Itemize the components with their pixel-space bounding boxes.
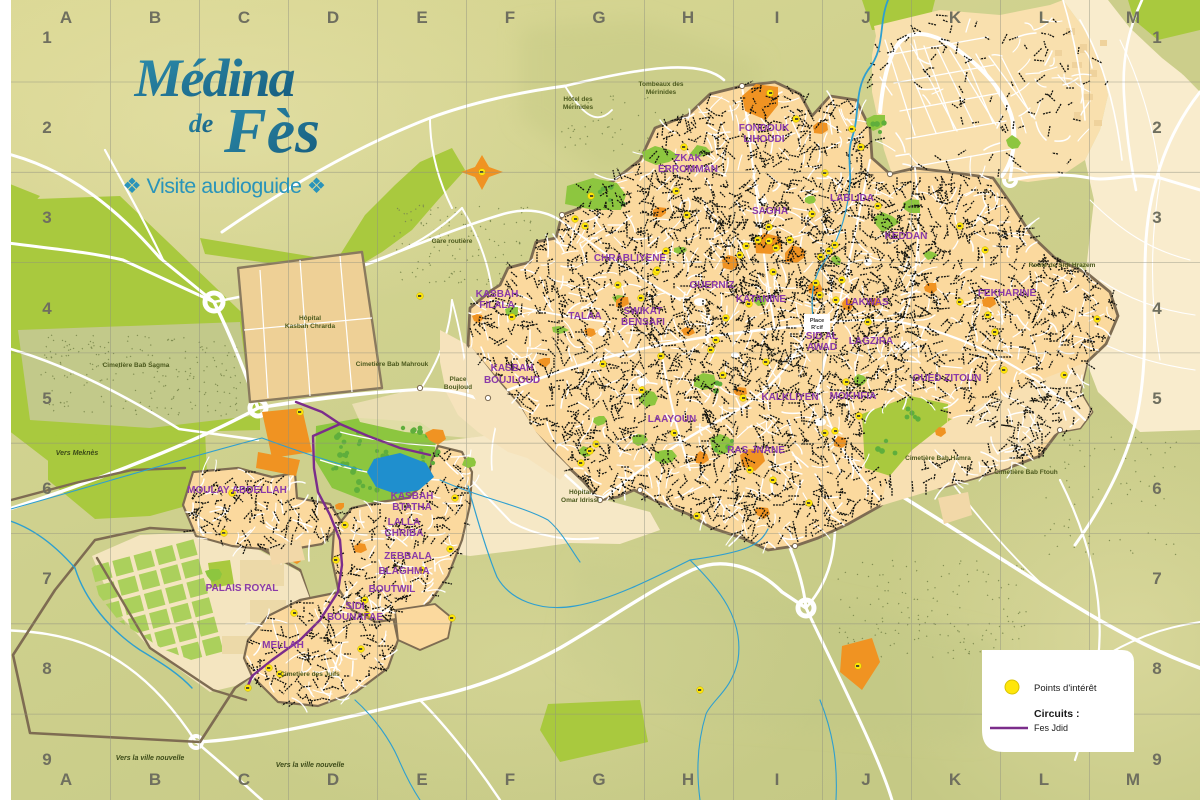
svg-text:Hôpital: Hôpital bbox=[569, 489, 591, 496]
svg-text:D: D bbox=[327, 8, 339, 27]
svg-text:BLAGHMA: BLAGHMA bbox=[378, 566, 429, 577]
svg-text:A: A bbox=[60, 770, 72, 789]
svg-text:MOKHFIA: MOKHFIA bbox=[830, 391, 877, 402]
svg-text:Vers la ville nouvelle: Vers la ville nouvelle bbox=[116, 755, 185, 762]
svg-text:BTATHA: BTATHA bbox=[392, 502, 432, 513]
svg-text:Circuits :: Circuits : bbox=[1034, 708, 1080, 720]
svg-text:KASBAH: KASBAH bbox=[391, 491, 434, 502]
svg-text:Cimetière des Juifs: Cimetière des Juifs bbox=[280, 671, 340, 678]
svg-text:LALLA: LALLA bbox=[388, 517, 421, 528]
svg-text:Cimetière Bab Mahrouk: Cimetière Bab Mahrouk bbox=[356, 361, 429, 368]
svg-text:C: C bbox=[238, 770, 250, 789]
svg-text:ERROMMAN: ERROMMAN bbox=[658, 164, 718, 175]
svg-text:9: 9 bbox=[1152, 750, 1161, 769]
svg-text:8: 8 bbox=[42, 659, 51, 678]
svg-text:I: I bbox=[775, 8, 780, 27]
svg-text:3: 3 bbox=[1152, 208, 1161, 227]
svg-text:4: 4 bbox=[42, 299, 52, 318]
svg-text:9: 9 bbox=[42, 750, 51, 769]
svg-text:Tombeaux des: Tombeaux des bbox=[638, 81, 683, 88]
svg-text:Route de Sidi Hrazem: Route de Sidi Hrazem bbox=[1029, 262, 1096, 269]
svg-text:J: J bbox=[861, 8, 870, 27]
svg-text:3: 3 bbox=[42, 208, 51, 227]
svg-text:FILALA: FILALA bbox=[479, 300, 515, 311]
svg-text:BOUJLOUD: BOUJLOUD bbox=[484, 375, 540, 386]
svg-text:Points d'intérêt: Points d'intérêt bbox=[1034, 683, 1097, 694]
svg-text:Fès: Fès bbox=[223, 95, 320, 166]
svg-text:Fes Jdid: Fes Jdid bbox=[1034, 723, 1068, 733]
svg-text:H: H bbox=[682, 8, 694, 27]
svg-text:1: 1 bbox=[42, 28, 51, 47]
svg-text:Cimetière Bab Ftouh: Cimetière Bab Ftouh bbox=[994, 469, 1058, 476]
svg-text:K: K bbox=[949, 8, 962, 27]
svg-text:5: 5 bbox=[1152, 389, 1161, 408]
svg-text:F: F bbox=[505, 770, 515, 789]
svg-text:L: L bbox=[1039, 770, 1049, 789]
svg-text:1: 1 bbox=[1152, 28, 1161, 47]
svg-text:D: D bbox=[327, 770, 339, 789]
svg-text:ZKAK: ZKAK bbox=[674, 153, 703, 164]
svg-text:AWAD: AWAD bbox=[807, 342, 837, 353]
svg-text:A: A bbox=[60, 8, 72, 27]
svg-text:Vers Meknès: Vers Meknès bbox=[56, 450, 99, 457]
svg-text:MELLAH: MELLAH bbox=[262, 640, 304, 651]
svg-text:LAGZIRA: LAGZIRA bbox=[849, 336, 893, 347]
svg-text:I: I bbox=[775, 770, 780, 789]
svg-text:Mérinides: Mérinides bbox=[563, 104, 594, 111]
svg-text:PALAIS ROYAL: PALAIS ROYAL bbox=[206, 583, 279, 594]
svg-text:E: E bbox=[416, 770, 427, 789]
svg-text:Boujloud: Boujloud bbox=[444, 384, 472, 391]
svg-text:Mérinides: Mérinides bbox=[646, 89, 677, 96]
svg-text:2: 2 bbox=[42, 118, 51, 137]
svg-text:K: K bbox=[949, 770, 962, 789]
svg-text:E: E bbox=[416, 8, 427, 27]
svg-text:4: 4 bbox=[1152, 299, 1162, 318]
svg-text:FONDOUK: FONDOUK bbox=[739, 123, 790, 134]
svg-text:BOUNAFAE: BOUNAFAE bbox=[327, 612, 383, 623]
svg-text:G: G bbox=[592, 770, 605, 789]
svg-text:Gare routière: Gare routière bbox=[432, 238, 473, 245]
svg-text:SID AL: SID AL bbox=[806, 331, 838, 342]
svg-text:M: M bbox=[1126, 770, 1140, 789]
svg-text:B: B bbox=[149, 8, 161, 27]
svg-text:Cimetière Bab Hamra: Cimetière Bab Hamra bbox=[905, 455, 971, 462]
svg-text:5: 5 bbox=[42, 389, 51, 408]
svg-text:F: F bbox=[505, 8, 515, 27]
svg-text:SWIKAT: SWIKAT bbox=[624, 306, 663, 317]
svg-text:LAKWAS: LAKWAS bbox=[845, 297, 889, 308]
svg-text:BOUTWIL: BOUTWIL bbox=[369, 584, 416, 595]
svg-text:de: de bbox=[189, 109, 214, 138]
svg-text:7: 7 bbox=[1152, 569, 1161, 588]
svg-text:Kasbah Chrarda: Kasbah Chrarda bbox=[285, 323, 336, 330]
svg-text:KEDDAN: KEDDAN bbox=[885, 231, 928, 242]
svg-text:H: H bbox=[682, 770, 694, 789]
svg-text:MOULAY ABDELLAH: MOULAY ABDELLAH bbox=[187, 485, 287, 496]
svg-text:B: B bbox=[149, 770, 161, 789]
svg-text:CHRIBA: CHRIBA bbox=[385, 528, 424, 539]
svg-text:BENSAFI: BENSAFI bbox=[621, 317, 665, 328]
svg-text:FEKHARINE: FEKHARINE bbox=[978, 288, 1037, 299]
svg-text:LABLIDA: LABLIDA bbox=[830, 193, 874, 204]
svg-text:7: 7 bbox=[42, 569, 51, 588]
svg-text:LIHOUDI: LIHOUDI bbox=[743, 134, 784, 145]
svg-text:6: 6 bbox=[42, 479, 51, 498]
svg-text:CHRABLIYENE: CHRABLIYENE bbox=[594, 253, 667, 264]
svg-text:L: L bbox=[1039, 8, 1049, 27]
svg-text:GUERNIZ: GUERNIZ bbox=[690, 280, 735, 291]
svg-text:G: G bbox=[592, 8, 605, 27]
svg-text:OUED ZITOUN: OUED ZITOUN bbox=[913, 373, 982, 384]
svg-text:KATANINE: KATANINE bbox=[736, 294, 787, 305]
svg-text:Cimetière Bab Sagma: Cimetière Bab Sagma bbox=[103, 362, 170, 369]
svg-text:8: 8 bbox=[1152, 659, 1161, 678]
svg-text:SIDI: SIDI bbox=[345, 601, 365, 612]
svg-text:Vers la ville nouvelle: Vers la ville nouvelle bbox=[276, 762, 345, 769]
svg-text:LAAYOUN: LAAYOUN bbox=[648, 414, 697, 425]
svg-text:Hôpital: Hôpital bbox=[299, 315, 321, 322]
svg-text:KASBAH: KASBAH bbox=[476, 289, 519, 300]
svg-text:KALKLIYEN: KALKLIYEN bbox=[761, 392, 818, 403]
svg-text:M: M bbox=[1126, 8, 1140, 27]
svg-text:KASBAH: KASBAH bbox=[491, 363, 534, 374]
svg-text:ZEBBALA: ZEBBALA bbox=[384, 551, 432, 562]
svg-text:J: J bbox=[861, 770, 870, 789]
svg-text:Hôtel des: Hôtel des bbox=[563, 96, 593, 103]
svg-text:Omar Idrissi: Omar Idrissi bbox=[561, 497, 599, 504]
svg-text:SAGHA: SAGHA bbox=[752, 206, 788, 217]
svg-text:C: C bbox=[238, 8, 250, 27]
svg-text:Place: Place bbox=[450, 376, 467, 383]
svg-text:❖ Visite audioguide ❖: ❖ Visite audioguide ❖ bbox=[122, 174, 325, 198]
svg-text:TALAA: TALAA bbox=[568, 311, 601, 322]
svg-text:6: 6 bbox=[1152, 479, 1161, 498]
svg-text:2: 2 bbox=[1152, 118, 1161, 137]
svg-text:Place: Place bbox=[810, 318, 824, 324]
svg-text:RAS JNANE: RAS JNANE bbox=[727, 445, 785, 456]
